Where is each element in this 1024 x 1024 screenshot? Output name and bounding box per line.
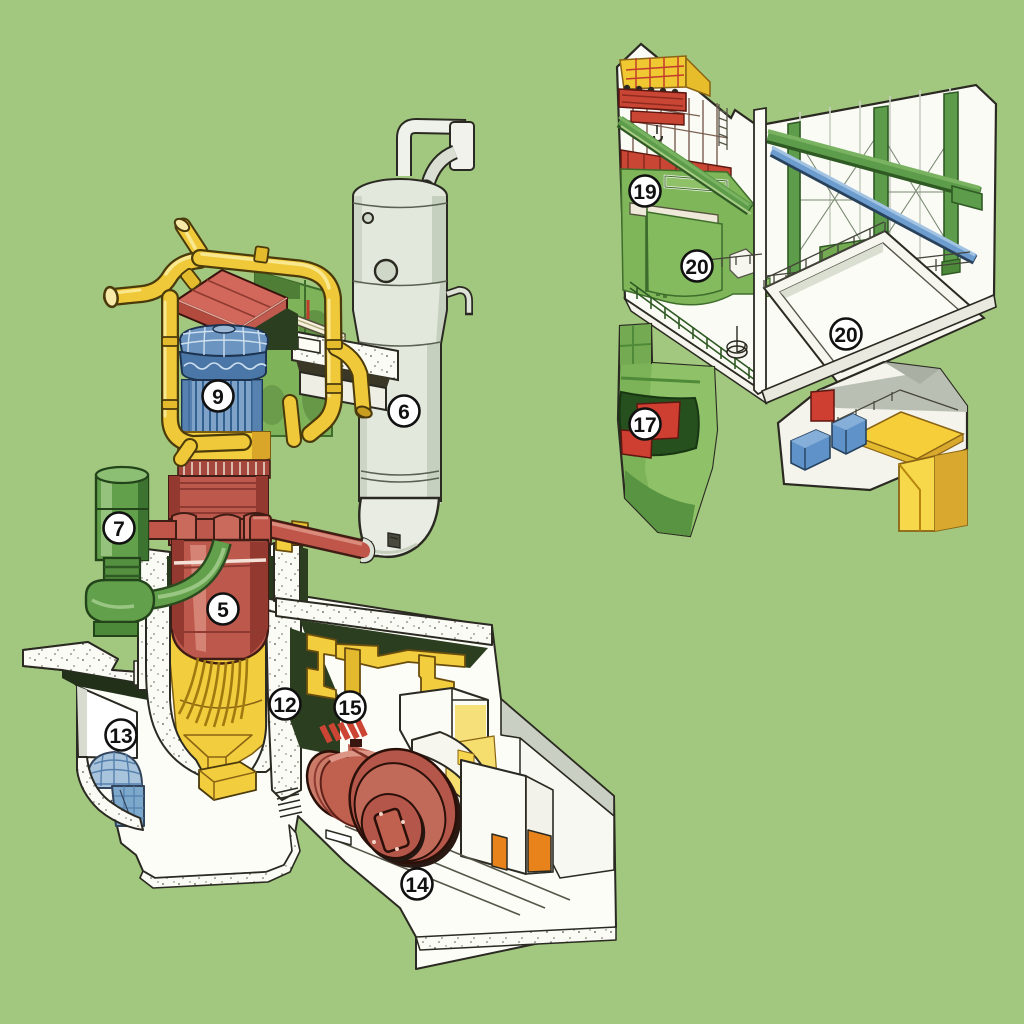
svg-text:6: 6 — [398, 401, 410, 424]
svg-text:9: 9 — [212, 386, 224, 409]
svg-text:12: 12 — [273, 694, 296, 717]
svg-text:13: 13 — [109, 725, 132, 748]
svg-text:20: 20 — [685, 256, 708, 279]
svg-text:20: 20 — [834, 324, 857, 347]
svg-text:15: 15 — [338, 697, 362, 720]
svg-text:17: 17 — [633, 414, 656, 437]
svg-text:14: 14 — [405, 874, 429, 897]
svg-text:7: 7 — [113, 518, 125, 541]
svg-text:5: 5 — [217, 599, 229, 622]
svg-text:19: 19 — [633, 181, 656, 204]
